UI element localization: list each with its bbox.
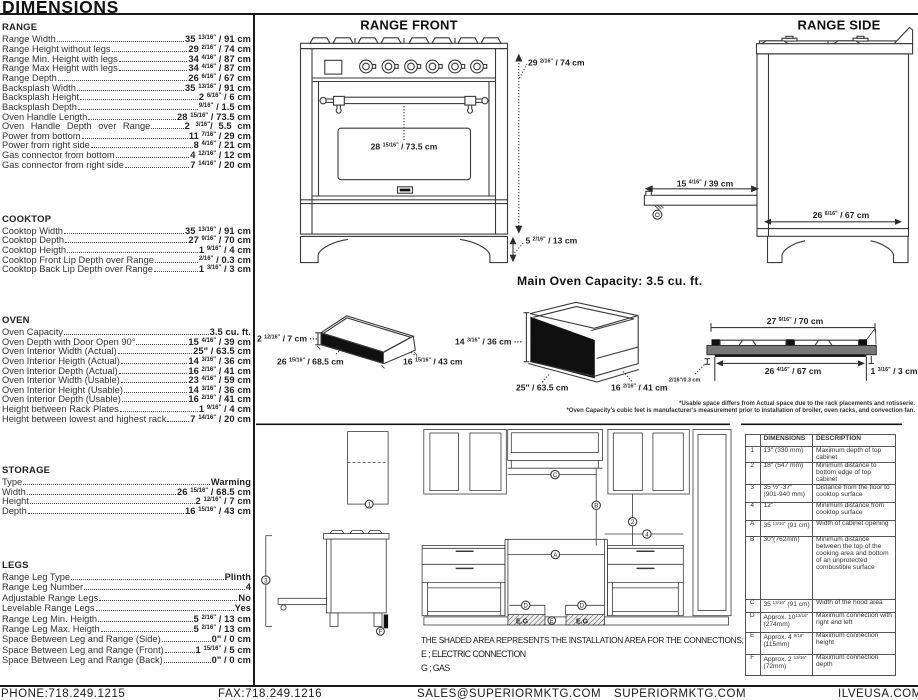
svg-text:28 15/16" / 73.5 cm: 28 15/16" / 73.5 cm <box>371 142 438 152</box>
svg-text:E.G: E.G <box>516 619 529 626</box>
svg-text:Main Oven Capacity: 3.5 cu. ft: Main Oven Capacity: 3.5 cu. ft. <box>517 274 702 288</box>
svg-text:16 15/16" / 43 cm: 16 15/16" / 43 cm <box>403 357 463 367</box>
svg-text:2/16"/0.3 cm: 2/16"/0.3 cm <box>669 378 701 384</box>
svg-text:15 4/16" / 39 cm: 15 4/16" / 39 cm <box>677 179 734 189</box>
svg-text:29 2/16" / 74 cm: 29 2/16" / 74 cm <box>528 58 585 68</box>
svg-text:27 9/16" / 70 cm: 27 9/16" / 70 cm <box>767 316 824 326</box>
svg-text:2 12/16" / 7 cm ···: 2 12/16" / 7 cm ··· <box>257 334 318 344</box>
svg-text:E: E <box>550 619 554 625</box>
svg-text:1 3/16" / 3 cm: 1 3/16" / 3 cm <box>871 366 918 376</box>
svg-text:RANGE FRONT: RANGE FRONT <box>360 18 458 33</box>
svg-text:B: B <box>594 504 598 510</box>
svg-text:D: D <box>524 604 529 610</box>
svg-text:26 4/16" / 67 cm: 26 4/16" / 67 cm <box>765 366 822 376</box>
svg-text:25" / 63.5 cm: 25" / 63.5 cm <box>516 383 569 393</box>
svg-text:E.G: E.G <box>576 619 589 626</box>
svg-text:26 15/16" / 68.5 cm: 26 15/16" / 68.5 cm <box>277 357 344 367</box>
svg-text:5 2/16" / 13 cm: 5 2/16" / 13 cm <box>526 236 578 246</box>
svg-text:C: C <box>553 473 558 479</box>
svg-text:D: D <box>580 604 585 610</box>
svg-text:RANGE SIDE: RANGE SIDE <box>798 18 881 33</box>
svg-text:14 3/16" / 36 cm ···: 14 3/16" / 36 cm ··· <box>455 337 523 347</box>
svg-text:16 2/16" / 41 cm: 16 2/16" / 41 cm <box>611 383 668 393</box>
svg-text:A: A <box>553 553 557 559</box>
svg-text:F: F <box>379 630 383 636</box>
svg-text:26 6/16" / 67 cm: 26 6/16" / 67 cm <box>813 210 870 220</box>
